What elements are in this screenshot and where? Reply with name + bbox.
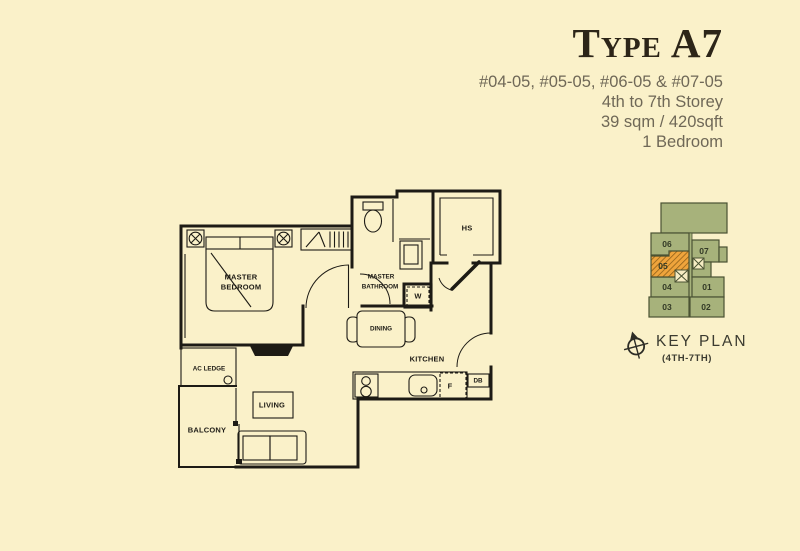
- vanity: [400, 241, 422, 269]
- keyplan-unit-07-ext: [719, 247, 727, 262]
- keyplan-block-top: [661, 203, 727, 233]
- ceiling-fixture-icon: [187, 230, 204, 247]
- fridge-box: [440, 373, 466, 399]
- room-label-master-bedroom: BEDROOM: [221, 283, 262, 292]
- keyplan-label-01: 01: [702, 282, 712, 292]
- room-label-ac-ledge: AC LEDGE: [193, 366, 226, 373]
- master-bathroom: [363, 199, 432, 308]
- tv-console: [250, 346, 293, 356]
- compass-icon: [621, 330, 651, 360]
- room-label-hs: HS: [462, 224, 473, 233]
- sink: [409, 375, 437, 396]
- walls: [181, 191, 500, 467]
- entrance-door-arc: [457, 333, 491, 367]
- keyplan-label-04: 04: [662, 282, 672, 292]
- room-label-balcony: BALCONY: [188, 426, 226, 435]
- hs-door-arc: [439, 278, 451, 290]
- room-labels: MASTER BEDROOM MASTER BATHROOM DINING KI…: [188, 224, 483, 435]
- toilet: [363, 202, 383, 232]
- keyplan-caption: KEY PLAN (4TH-7TH): [621, 330, 748, 364]
- shower-screen: [393, 199, 430, 242]
- room-label-master-bathroom: BATHROOM: [362, 284, 399, 291]
- wardrobe: [301, 229, 352, 250]
- keyplan-title: KEY PLAN: [656, 333, 748, 351]
- floorplan-page: Type A7 #04-05, #05-05, #06-05 & #07-05 …: [0, 0, 800, 551]
- unit-type-title: Type A7: [479, 22, 723, 65]
- storey-range: 4th to 7th Storey: [479, 92, 723, 112]
- keyplan-label-05: 05: [658, 261, 668, 271]
- bedroom-door-arc: [306, 265, 349, 308]
- keyplan-storey-range: (4TH-7TH): [662, 353, 748, 364]
- master-bedroom: [187, 229, 352, 356]
- room-label-master-bedroom: MASTER: [225, 273, 258, 282]
- keyplan-label-02: 02: [701, 302, 711, 312]
- sliding-door-handle: [233, 421, 238, 426]
- room-label-master-bathroom: MASTER: [368, 274, 395, 281]
- hs-door-leaf: [452, 262, 479, 289]
- ceiling-fixture-icon: [275, 230, 292, 247]
- core-x-icon: [675, 270, 688, 282]
- keyplan-label-06: 06: [662, 239, 672, 249]
- sofa: [238, 431, 306, 464]
- room-label-dining: DINING: [370, 326, 392, 333]
- room-label-washer: W: [414, 292, 422, 301]
- room-label-db: DB: [473, 378, 483, 385]
- room-label-kitchen: KITCHEN: [410, 355, 445, 364]
- room-label-living: LIVING: [259, 401, 285, 410]
- room-label-fridge: F: [448, 382, 453, 391]
- keyplan-label-03: 03: [662, 302, 672, 312]
- keyplan-label-07: 07: [699, 246, 709, 256]
- unit-header: Type A7 #04-05, #05-05, #06-05 & #07-05 …: [479, 22, 723, 152]
- unit-area: 39 sqm / 420sqft: [479, 112, 723, 132]
- core-x-icon: [693, 258, 704, 269]
- hob: [355, 374, 378, 397]
- bedroom-count: 1 Bedroom: [479, 132, 723, 152]
- unit-numbers: #04-05, #05-05, #06-05 & #07-05: [479, 72, 723, 92]
- floor-plan: MASTER BEDROOM MASTER BATHROOM DINING KI…: [160, 180, 520, 490]
- key-plan-map: 06 05 04 03 07 01 02: [640, 195, 740, 325]
- ac-unit-icon: [224, 376, 232, 384]
